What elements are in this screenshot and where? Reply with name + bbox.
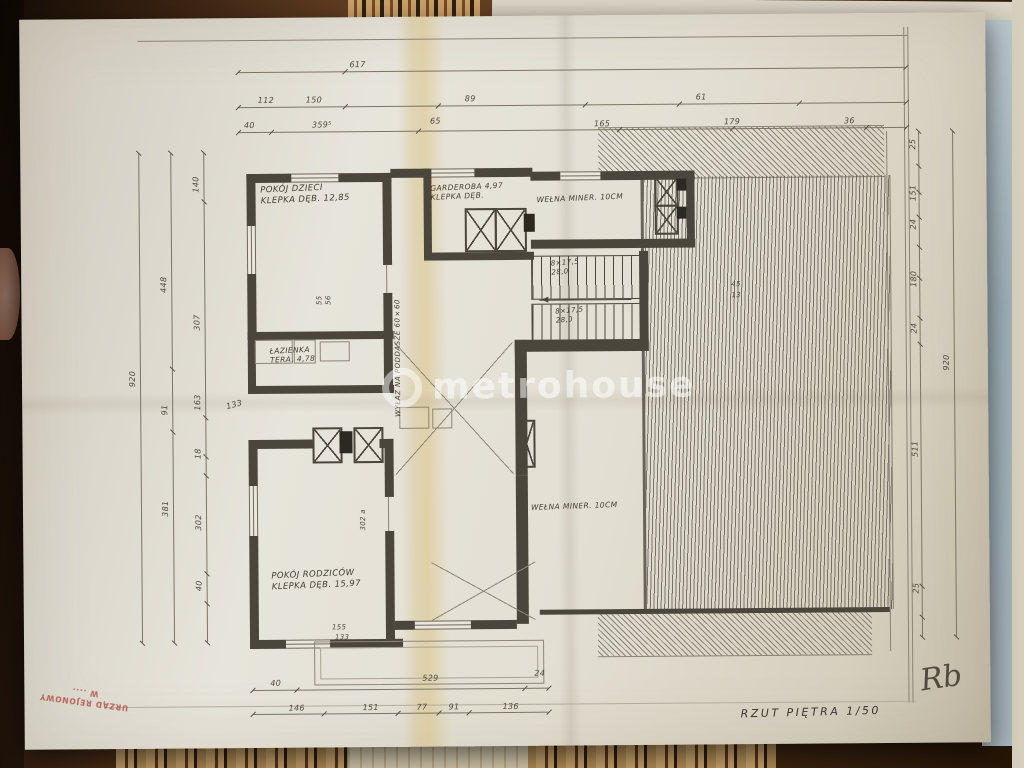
dim-number: 13 [731, 291, 741, 299]
room-finish: TERA. 4,78 [270, 354, 316, 365]
dim-number: 307 [192, 314, 201, 330]
dim-tick [917, 341, 923, 347]
dim-number: 920 [128, 371, 137, 387]
dim-tick [170, 366, 176, 372]
room-finish: KLEPKA DĘB. [431, 191, 485, 202]
dim-tick [269, 129, 275, 135]
dim-tick [201, 199, 207, 205]
dim-number: 381 [161, 501, 170, 517]
room-label-pokoj-rodzicow: POKÓJ RODZICÓWKLEPKA DĘB. 15,97 [271, 568, 361, 593]
dim-number: 150 [306, 95, 322, 104]
watermark-text: metrohouse [432, 365, 696, 408]
dim-number: 40 [244, 121, 255, 130]
dim-number: 77 [417, 703, 428, 712]
shaft-box [353, 427, 383, 463]
dim-tick [676, 101, 682, 107]
dim-number: 529 [422, 674, 438, 683]
dim-number: 180 [909, 271, 918, 287]
shaft-box [312, 427, 342, 463]
dim-tick [236, 130, 242, 136]
photo-of-floor-plan: 8×17,528,0 8×17,528,0 POKÓJ DZIECIKLEPKA… [0, 0, 1024, 768]
dim-number: 359⁵ [312, 120, 332, 129]
dim-number: 448 [159, 277, 168, 293]
stair-note-line: 28,0 [556, 315, 574, 324]
stair-note-line: 28,0 [551, 267, 569, 276]
dim-tick [546, 685, 552, 691]
wall-segment [248, 440, 312, 450]
door-opening [386, 265, 387, 293]
blueprint-paper: 8×17,528,0 8×17,528,0 POKÓJ DZIECIKLEPKA… [19, 12, 991, 750]
wall-segment [530, 172, 560, 181]
dim-tick [236, 105, 242, 111]
dim-number: 40 [195, 580, 204, 591]
dim-tick [917, 245, 923, 251]
stair-flight-lower [531, 303, 641, 348]
dim-tick [170, 430, 176, 436]
dim-tick [917, 316, 923, 322]
dim-number: 302 a [359, 509, 367, 530]
window [560, 171, 600, 180]
dim-number: 151 [908, 185, 917, 201]
dim-number: 61 [696, 92, 707, 101]
dim-tick [204, 601, 210, 607]
dim-line [918, 131, 923, 637]
door-opening [388, 497, 389, 531]
stair-direction-arrow [539, 299, 631, 301]
note-welna-mid: WEŁNA MINER. 10CM [531, 500, 618, 512]
dim-tick [395, 711, 401, 717]
dim-tick [321, 711, 327, 717]
dim-number: 165 [594, 119, 610, 128]
dim-tick [203, 415, 209, 421]
dim-tick [916, 128, 922, 134]
dim-number: 151 [363, 703, 379, 712]
stair-flight-upper [531, 255, 641, 300]
dim-number: 24 [534, 669, 545, 678]
dim-number: 617 [349, 60, 365, 69]
dim-number: 146 [289, 704, 305, 713]
dim-number: 91 [449, 702, 460, 711]
dim-tick [204, 571, 210, 577]
dim-tick [235, 70, 241, 76]
dim-tick [583, 102, 589, 108]
dim-tick [250, 688, 256, 694]
beige-strip-far-right [1012, 0, 1024, 768]
dim-number: 45 [731, 280, 741, 288]
drawing-title: RZUT PIĘTRA 1/50 [740, 704, 881, 721]
dim-number: 24 [910, 323, 919, 334]
dim-tick [201, 150, 207, 156]
wall-segment [249, 536, 259, 648]
dim-number: 112 [258, 96, 274, 105]
dim-tick [916, 164, 922, 170]
flue [676, 179, 686, 191]
dim-tick [168, 150, 174, 156]
dim-tick [205, 640, 211, 646]
wall-segment [248, 385, 394, 394]
window [249, 486, 258, 536]
dim-tick [522, 686, 528, 692]
window [430, 168, 474, 177]
red-office-stamp: URZĄD REJONOWY W .... [36, 681, 134, 713]
wall-segment [424, 252, 534, 261]
dim-number: 56 [324, 295, 332, 305]
dim-number: 25 [912, 583, 921, 594]
wall-segment [686, 171, 695, 248]
flue [524, 214, 535, 232]
window [291, 173, 338, 182]
stair-note-line: 8×17,5 [555, 305, 584, 315]
dim-tick [920, 634, 926, 640]
dim-tick [203, 454, 209, 460]
dim-tick [295, 687, 301, 693]
dim-number: 302 [194, 514, 203, 530]
shaft-box [655, 205, 679, 235]
dim-tick [546, 709, 552, 715]
dim-tick [954, 634, 960, 640]
dim-tick [342, 104, 348, 110]
dim-tick [950, 128, 956, 134]
dim-number: 36 [844, 116, 855, 125]
dim-tick [250, 712, 256, 718]
dim-tick [172, 640, 178, 646]
dim-tick [203, 473, 209, 479]
wall-segment [395, 621, 415, 630]
dim-tick [140, 641, 146, 647]
cross-marking [431, 562, 535, 621]
fixture [432, 408, 452, 428]
stair-note: 8×17,528,0 [555, 305, 585, 325]
wall-segment [248, 440, 257, 486]
shaft-box [517, 420, 535, 468]
dim-tick [342, 69, 348, 75]
dim-number: 91 [160, 405, 169, 416]
watermark-logo-icon [382, 367, 422, 407]
wall-segment [246, 174, 255, 226]
dim-number: 65 [430, 116, 441, 125]
wall-segment [250, 640, 286, 649]
wall-segment [385, 531, 395, 647]
window [415, 620, 471, 629]
shaft-box [495, 208, 527, 252]
flue [677, 207, 687, 219]
handwritten-signature: Rb [918, 658, 964, 699]
dim-number: 25 [908, 139, 917, 150]
dim-tick [920, 614, 926, 620]
window [247, 226, 256, 274]
watermark: metrohouse [382, 365, 696, 408]
dim-number: 140 [191, 176, 200, 192]
note-welna-top: WEŁNA MINER. 10CM [536, 192, 623, 205]
dim-number: 89 [465, 94, 476, 103]
room-label-lazienka: ŁAZIENKATERA. 4,78 [269, 345, 315, 366]
dim-number: 18 [194, 448, 203, 459]
dim-line [952, 130, 957, 636]
sheet-frame-top [137, 35, 907, 42]
fixture [320, 341, 350, 361]
dim-tick [136, 151, 142, 157]
shaft-box [465, 208, 497, 252]
shaft-box [654, 177, 678, 207]
flue [339, 431, 352, 453]
dim-tick [797, 100, 803, 106]
room-label-garderoba: GARDEROBA 4,97KLEPKA DĘB. [430, 181, 503, 203]
dim-number: 179 [724, 117, 740, 126]
fixture [399, 407, 429, 429]
room-label-pokoj-dzieci: POKÓJ DZIECIKLEPKA DĘB. 12,85 [260, 182, 350, 207]
dim-number: 920 [942, 354, 951, 370]
wall-segment [384, 439, 393, 497]
dim-line [252, 688, 548, 691]
dim-number: 55 [315, 295, 323, 305]
stair-note: 8×17,528,0 [550, 257, 580, 277]
dim-number: 24 [909, 219, 918, 230]
wall-segment [423, 169, 432, 259]
wall-segment [471, 620, 517, 629]
dim-tick [466, 710, 472, 716]
dim-number: 511 [910, 441, 919, 457]
dim-number: 133 [335, 633, 349, 641]
wall-segment [248, 331, 394, 340]
dim-number: 163 [193, 394, 202, 410]
wall-segment [531, 239, 695, 249]
dim-number: 40 [270, 679, 281, 688]
stair-note-line: 8×17,5 [550, 257, 579, 267]
dim-number: 136 [503, 702, 519, 711]
wall-segment [474, 168, 532, 177]
wall-segment [382, 173, 392, 265]
roof-hatch-bottom-strip [598, 611, 872, 657]
dim-number: 155 [332, 623, 346, 631]
wall-segment [247, 274, 257, 340]
